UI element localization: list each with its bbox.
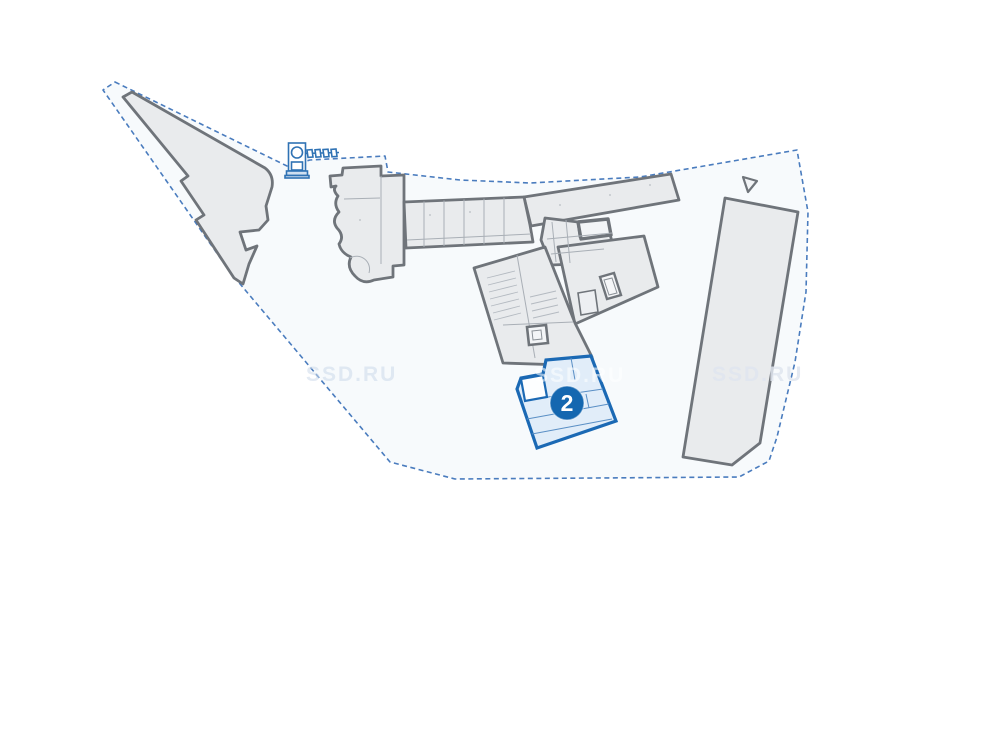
section-badge-number[interactable]: 2 [561,390,574,416]
elevator-core [527,325,548,345]
barrier-arm-stripe [323,149,329,157]
site-plan-viewer: 2 SSD.RU SSD.RU SSD.RU [0,0,1000,750]
watermarks: SSD.RU SSD.RU SSD.RU [306,363,803,387]
site-plan-svg: 2 SSD.RU SSD.RU SSD.RU [0,0,1000,750]
watermark-text: SSD.RU [306,363,397,386]
barrier-base-plate [285,176,309,179]
watermark-text: SSD.RU [712,363,803,386]
barrier-pivot-circle [292,147,303,158]
west-wedge-outline [123,92,272,284]
complex-room-band [404,197,533,248]
barrier-arm-stripe [331,149,337,157]
watermark-text: SSD.RU [534,364,625,387]
small-room [578,290,598,315]
building-west-wedge [123,92,272,284]
barrier-control-box [292,162,303,170]
barrier-arm-stripe [307,150,313,158]
barrier-arm-stripe [315,149,321,157]
